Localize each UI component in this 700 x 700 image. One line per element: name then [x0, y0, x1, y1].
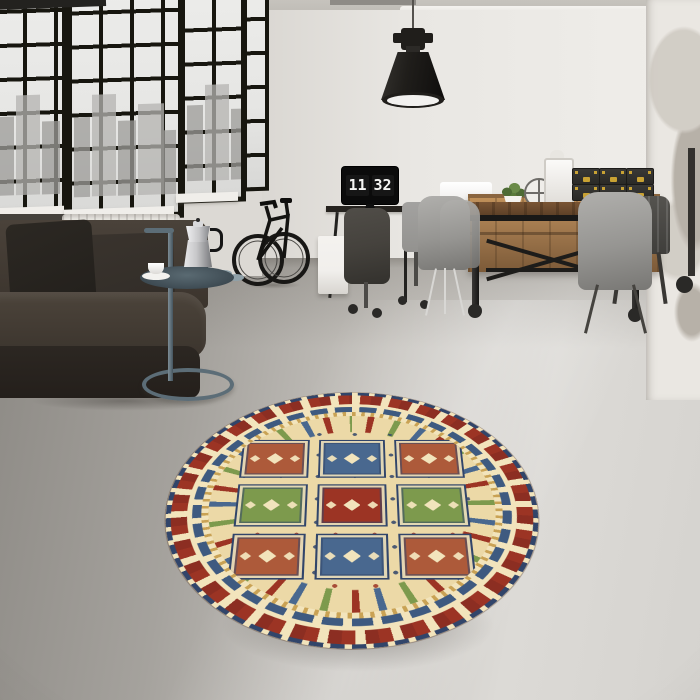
brass-corner: [575, 171, 578, 174]
rug-panel-green: [396, 484, 470, 526]
side-table-pole: [168, 229, 173, 381]
rug-panel-red: [316, 484, 388, 526]
rug-medallion: [404, 455, 415, 462]
shell-armchair: [578, 192, 652, 290]
brass-corner: [648, 171, 651, 174]
rug-medallion: [324, 552, 336, 560]
brass-corner: [594, 171, 597, 174]
rug-panel-rust: [394, 440, 464, 478]
brass-corner: [621, 171, 624, 174]
rug-medallion: [289, 455, 300, 462]
moka-knob: [196, 218, 200, 222]
brass-corner: [648, 187, 651, 190]
brass-corner: [621, 187, 624, 190]
round-kazak-rug: [141, 393, 563, 649]
rug-medallion: [406, 501, 417, 509]
brass-latch: [610, 177, 617, 182]
brass-latch: [583, 177, 590, 182]
rug-medallion: [344, 453, 360, 464]
moka-pot-top: [186, 226, 210, 242]
storage-box: [572, 168, 600, 185]
moka-handle: [210, 228, 223, 252]
table-caster: [468, 304, 482, 318]
window-bay-1: [0, 0, 68, 220]
caster-wheel: [372, 308, 382, 318]
stand-pole: [688, 148, 695, 276]
rug-medallion: [283, 552, 295, 560]
chair-pole: [364, 282, 368, 308]
hoodie-on-chair: [344, 208, 390, 284]
brass-latch: [637, 177, 644, 182]
brass-corner: [594, 187, 597, 190]
round-rug-wrap: [141, 393, 563, 649]
loft-room-photo: 11 32: [0, 0, 700, 700]
rug-medallion: [325, 501, 336, 509]
rug-medallion: [327, 455, 338, 462]
rug-medallion: [421, 453, 438, 464]
rug-medallion: [452, 552, 464, 560]
saddle: [280, 198, 292, 203]
caster-wheel: [398, 296, 407, 305]
moka-pot: [184, 240, 212, 267]
rug-medallion: [286, 501, 297, 509]
rug-medallion: [448, 501, 460, 509]
storage-box: [599, 168, 627, 185]
monitor-flip-clock: 11 32: [342, 167, 398, 204]
rug-medallion: [367, 455, 378, 462]
window-bay-3: [180, 0, 246, 204]
window-bay-2: [66, 0, 184, 222]
clock-minutes: 32: [372, 175, 394, 196]
bicycle-graphic: [232, 176, 312, 290]
clock-hours: 11: [346, 175, 368, 196]
ceiling-conduit: [330, 0, 416, 5]
brass-corner: [629, 187, 632, 190]
bicycle: [232, 176, 312, 290]
rug-panel-grid: [228, 440, 477, 580]
bike-frame: [258, 202, 288, 260]
brass-corner: [602, 187, 605, 190]
rug-medallion: [443, 455, 454, 462]
rug-panel-rust: [239, 440, 309, 478]
rug-panel-blue: [314, 533, 390, 579]
caster-wheel: [676, 276, 693, 293]
rug-medallion: [343, 550, 361, 563]
rug-medallion: [368, 552, 380, 560]
rug-medallion: [258, 550, 277, 563]
rug-medallion: [262, 499, 280, 511]
shell-chair: [440, 200, 480, 268]
side-table-arm: [144, 228, 174, 233]
rug-panel-rust: [399, 533, 477, 579]
rug-medallion: [249, 455, 260, 462]
rug-medallion: [266, 453, 283, 464]
rug-medallion: [245, 501, 257, 509]
brass-corner: [575, 187, 578, 190]
city-skyline: [0, 89, 62, 197]
window-bay-4: [243, 0, 269, 192]
storage-box: [626, 168, 654, 185]
city-skyline: [72, 86, 178, 197]
rug-medallion: [367, 501, 378, 509]
city-skyline: [185, 79, 241, 182]
brass-corner: [629, 171, 632, 174]
lamp-diffuser: [387, 95, 439, 106]
rug-medallion: [343, 499, 360, 511]
caster-wheel: [348, 304, 358, 314]
rug-panel-blue: [318, 440, 387, 478]
rug-panel-green: [234, 484, 308, 526]
rug-medallion: [427, 550, 446, 563]
rug-medallion: [239, 552, 251, 560]
brass-corner: [602, 171, 605, 174]
rug-panel-rust: [228, 533, 306, 579]
rug-medallion: [409, 552, 421, 560]
wire-leg: [444, 268, 446, 314]
rug-medallion: [424, 499, 442, 511]
